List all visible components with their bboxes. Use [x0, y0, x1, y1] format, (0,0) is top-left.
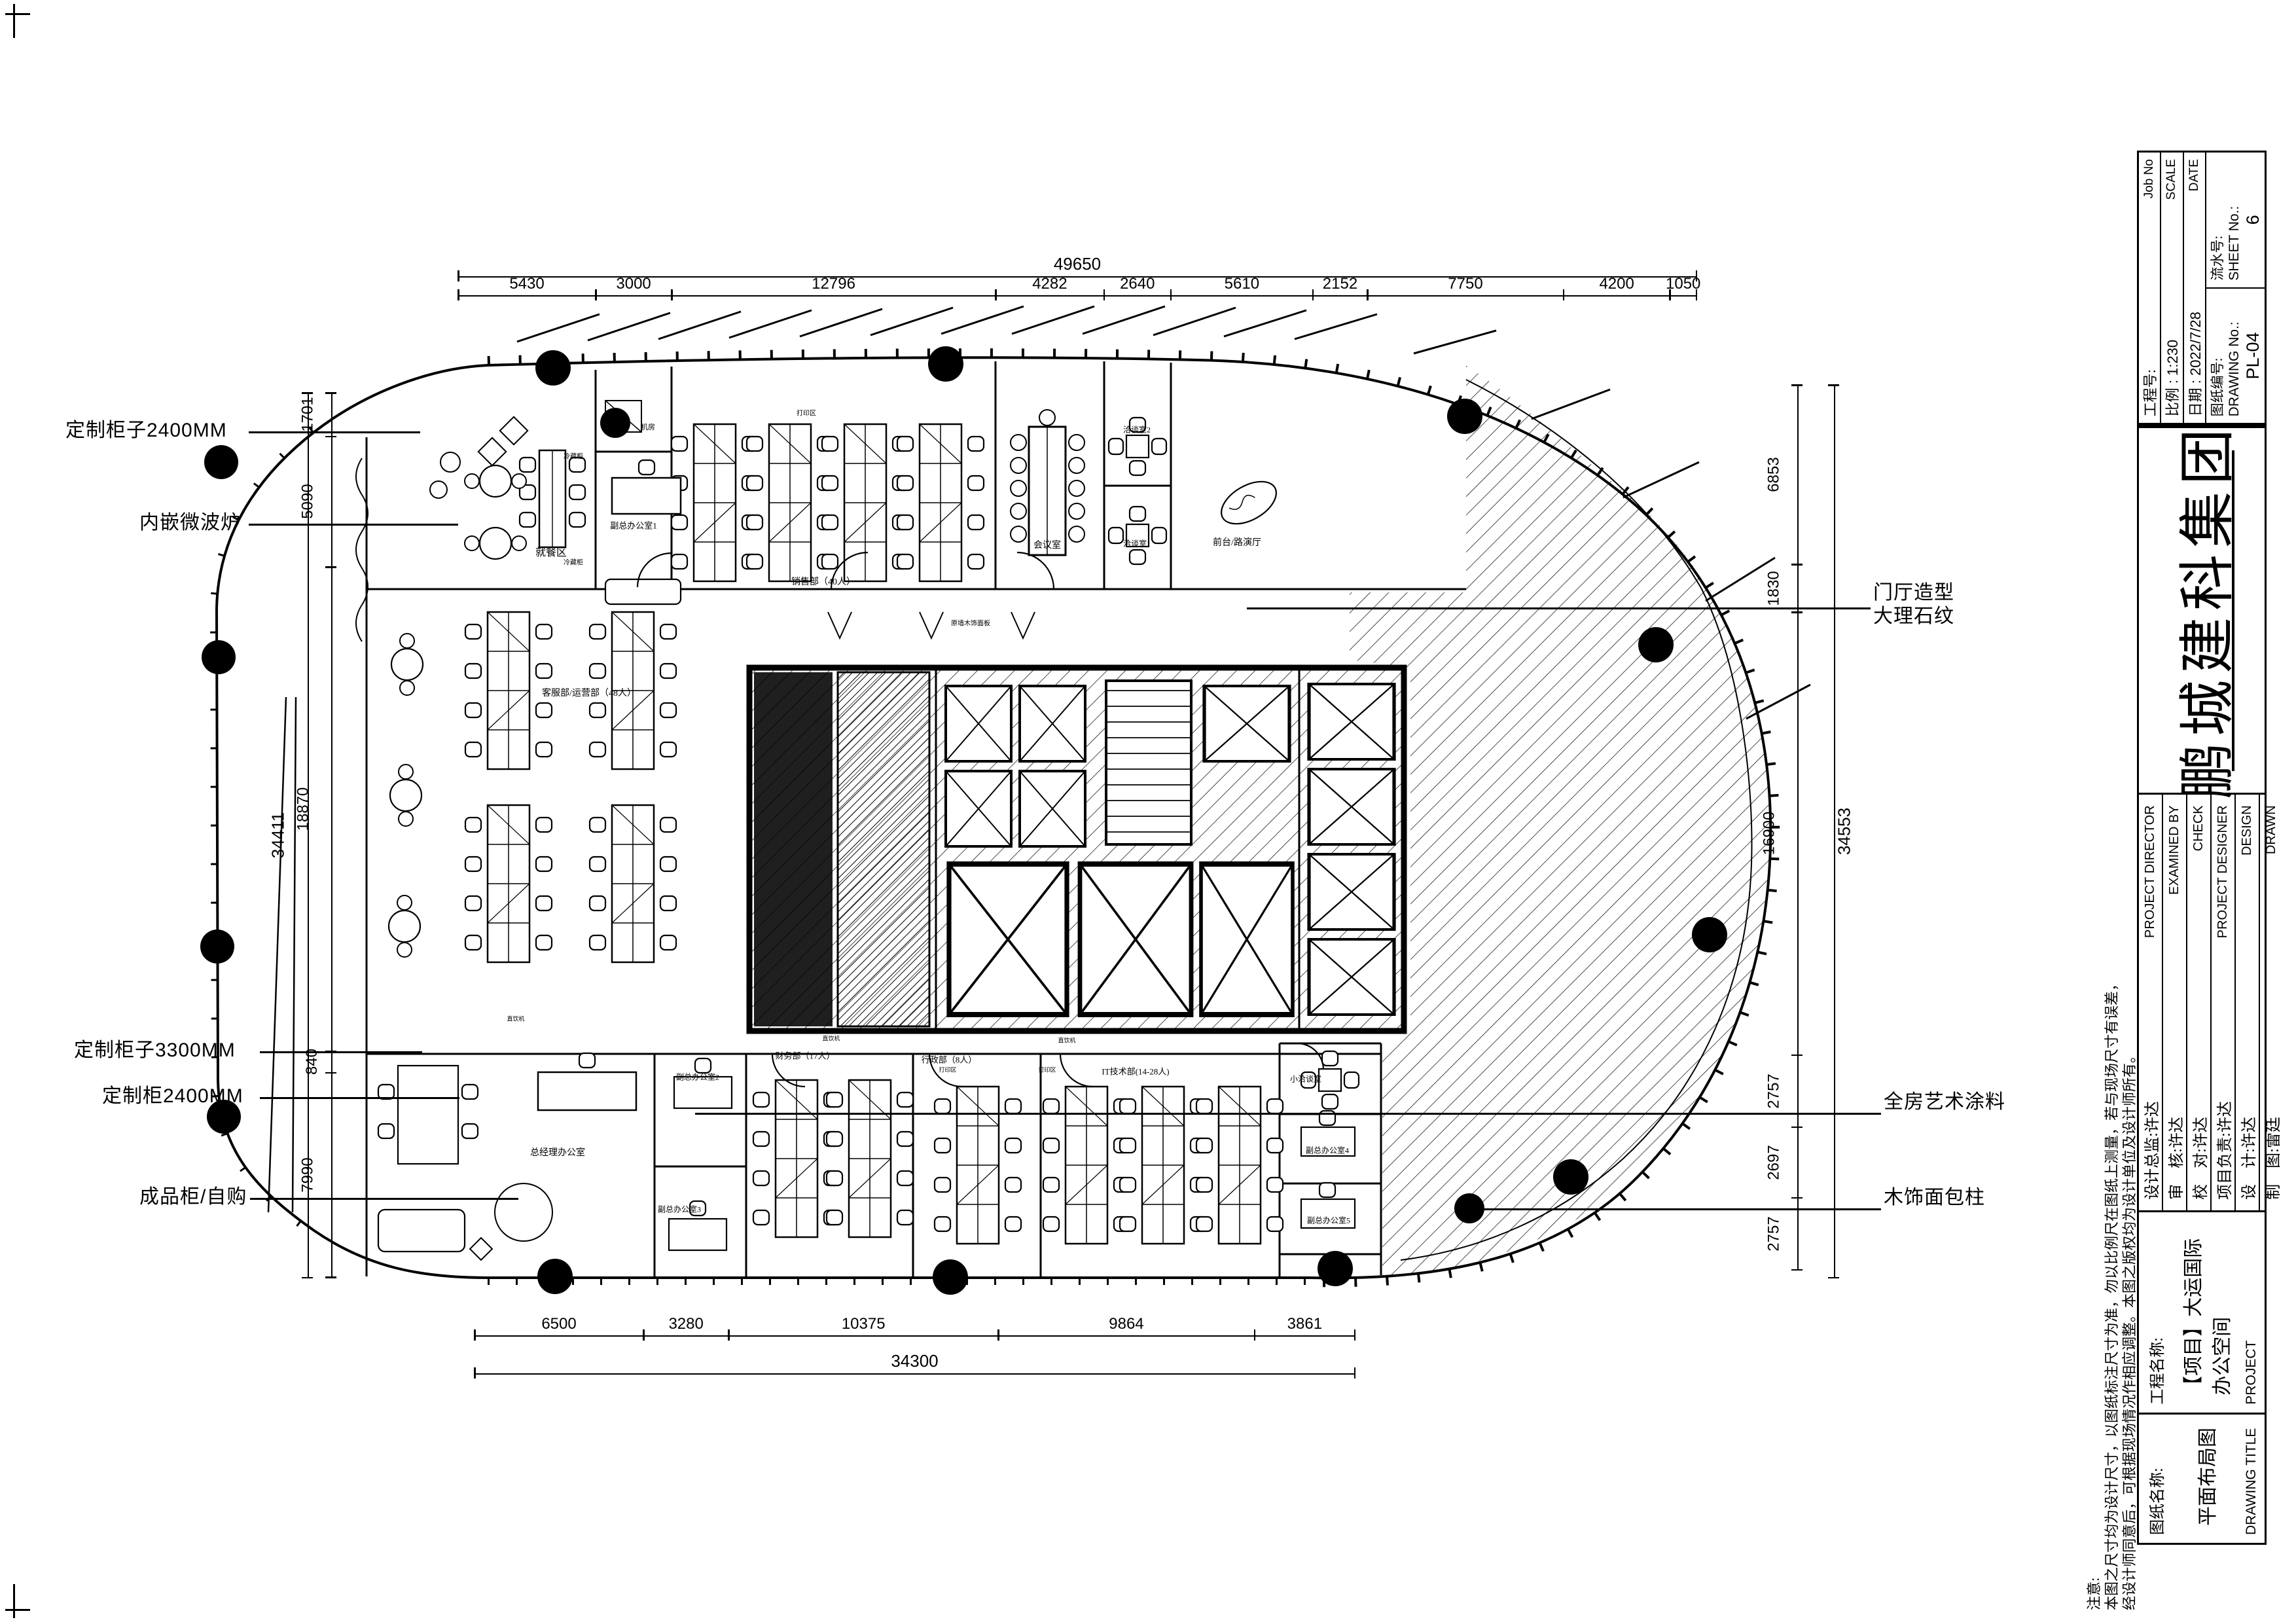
annotation-leader: [1475, 1208, 1881, 1210]
room-label: 打印区: [939, 1066, 956, 1074]
room-label: 小洽谈室: [1290, 1074, 1321, 1085]
project-name-value: 【项目】大运国际办公空间: [2177, 1220, 2234, 1405]
corner-mark: [13, 1584, 15, 1618]
staff-row: 设 计:许达DESIGN: [2236, 795, 2260, 1210]
staff-row: 制 图:雷廷DRAWN: [2260, 795, 2283, 1210]
room-label: 客服部/运营部（48人）: [542, 686, 636, 699]
room-label: 直饮机: [1058, 1036, 1075, 1045]
annotation-label: 定制柜2400MM: [102, 1085, 243, 1108]
room-label: 原墙木饰面板: [951, 618, 990, 628]
annotation-label: 内嵌微波炉: [139, 511, 241, 535]
room-label: 冷藏柜: [564, 557, 583, 567]
staff-row: 校 对:许达CHECK: [2187, 795, 2212, 1210]
annotation-label: 全房艺术涂料: [1884, 1091, 2005, 1114]
dim-segment: 3000: [596, 278, 672, 297]
dim-segment: 6500: [475, 1317, 643, 1337]
room-label: 打印区: [1038, 1066, 1056, 1074]
annotation-label: 定制柜子2400MM: [65, 419, 227, 442]
room-label: 洽谈室2: [1123, 424, 1151, 435]
drawing-number-value: PL-04: [2245, 295, 2261, 417]
room-label: 机房: [641, 422, 655, 432]
annotation-leader: [260, 1051, 422, 1053]
title-block: 图纸名称: 平面布局图 DRAWING TITLE 工程名称: 【项目】大运国际…: [2137, 151, 2267, 1545]
dim-segment: 10375: [728, 1317, 998, 1337]
drawing-sheet: 49650 5430300012796428226405610215277504…: [0, 0, 2296, 1624]
room-label: 就餐区: [535, 543, 567, 559]
drawing-name-en: DRAWING TITLE: [2244, 1422, 2259, 1535]
room-label: 打印区: [797, 408, 816, 418]
annotation-label: 门厅造型大理石纹: [1873, 581, 1954, 628]
annotation-leader: [249, 524, 458, 526]
dim-right-overall: 34553: [1814, 385, 1835, 1278]
note-line: 经设计师同意后，可根据现场情况作相应调整。本图之版权均为设计单位及设计师所有。: [2121, 223, 2138, 1610]
annotation-leader: [249, 431, 420, 433]
dim-segment: 3280: [643, 1317, 728, 1337]
project-name-label: 工程名称:: [2144, 1220, 2167, 1405]
scale-row: 比例 : 1:230 SCALE: [2161, 153, 2183, 423]
core: [749, 668, 1404, 1031]
room-label: 副总办公室3: [658, 1204, 701, 1215]
job-number-row: 工程号:Job No: [2139, 153, 2161, 423]
dim-segment: 18870: [309, 567, 332, 1051]
annotation-leader: [260, 1097, 459, 1099]
room-label: 副总办公室5: [1307, 1215, 1350, 1226]
note-label: 注意:: [2085, 223, 2103, 1610]
annotation-leader: [695, 1113, 1881, 1115]
dim-segment: 1701: [309, 393, 332, 437]
room-label: 洽谈室1: [1123, 538, 1151, 549]
staff-row: 审 核:许达EXAMINED BY: [2163, 795, 2187, 1210]
annotation-label: 定制柜子3300MM: [74, 1039, 236, 1062]
dim-segment: 7990: [309, 1073, 332, 1278]
room-label: 财务部（17人）: [775, 1049, 834, 1062]
staff-row: 项目负责:许达PROJECT DESIGNER: [2212, 795, 2236, 1210]
dim-segment: 16900: [1775, 612, 1799, 1055]
title-project-section: 工程名称: 【项目】大运国际办公空间 PROJECT: [2139, 1210, 2265, 1413]
title-drawing-section: 图纸名称: 平面布局图 DRAWING TITLE: [2139, 1413, 2265, 1543]
dim-segment: 4200: [1564, 278, 1670, 297]
room-label: 直饮机: [507, 1015, 524, 1023]
room-label: 副总办公室4: [1306, 1145, 1349, 1156]
dim-top-chain: 5430300012796428226405610215277504200105…: [458, 278, 1696, 297]
dim-segment: 1050: [1670, 278, 1696, 297]
annotation-label: 成品柜/自购: [139, 1185, 247, 1209]
annotation-leader: [1247, 607, 1871, 609]
room-label: 前台/路演厅: [1213, 535, 1261, 549]
dim-segment: 12796: [672, 278, 996, 297]
note-line: 本图之尺寸均为设计尺寸，以图纸标注尺寸为准，勿以比例尺在图纸上测量，若与现场尺寸…: [2103, 223, 2121, 1610]
floor-plan-svg: [0, 0, 2296, 1624]
room-label: 副总办公室2: [676, 1072, 719, 1083]
drawing-name-value: 平面布局图: [2191, 1422, 2220, 1535]
notes-strip: 注意: 本图之尺寸均为设计尺寸，以图纸标注尺寸为准，勿以比例尺在图纸上测量，若与…: [2085, 223, 2140, 1610]
sheet-number-cell: 流水号: SHEET No.: 6: [2206, 153, 2265, 287]
title-logo-section: 鹏城建科集团: [2139, 426, 2265, 793]
dim-bottom-overall: 34300: [475, 1352, 1355, 1375]
annotation-leader: [250, 1198, 518, 1200]
date-row: 日期 : 2022/7/28 DATE: [2184, 153, 2206, 423]
room-label: 冷藏柜: [564, 451, 583, 461]
logo-underline: [2232, 450, 2234, 771]
sheet-number-value: 6: [2245, 159, 2261, 281]
drawing-name-label: 图纸名称:: [2144, 1422, 2167, 1535]
dim-segment: 2757: [1775, 1055, 1799, 1127]
room-label: 直饮机: [822, 1034, 840, 1043]
room-label: IT技术部(14-28人): [1102, 1065, 1169, 1077]
dim-segment: 840: [309, 1051, 332, 1073]
corner-mark: [13, 4, 15, 38]
dim-segment: 7750: [1367, 278, 1564, 297]
corner-mark: [5, 13, 30, 15]
drawing-number-cell: 图纸编号: DRAWING No.: PL-04: [2206, 287, 2265, 424]
dim-right-chain: 6853183016900275726972757: [1775, 385, 1799, 1270]
title-staff-section: 设计总监:许达PROJECT DIRECTOR审 核:许达EXAMINED BY…: [2139, 793, 2265, 1210]
dim-segment: 2697: [1775, 1127, 1799, 1198]
staff-row: 设计总监:许达PROJECT DIRECTOR: [2139, 795, 2163, 1210]
dim-segment: 5610: [1171, 278, 1313, 297]
annotation-label: 木饰面包柱: [1884, 1186, 1985, 1210]
room-label: 行政部（8人）: [922, 1053, 977, 1066]
dim-segment: 3861: [1255, 1317, 1355, 1337]
corner-mark: [5, 1609, 30, 1611]
room-label: 副总办公室1: [610, 519, 657, 532]
dim-segment: 4282: [996, 278, 1104, 297]
dim-segment: 2640: [1104, 278, 1171, 297]
dim-segment: 1830: [1775, 564, 1799, 612]
dim-bottom-chain: 650032801037598643861: [475, 1317, 1355, 1337]
company-logo: 鹏城建科集团: [2161, 422, 2243, 799]
room-label: 销售部（40人）: [791, 575, 855, 588]
room-label: 会议室: [1033, 538, 1061, 551]
room-label: 总经理办公室: [530, 1146, 585, 1159]
title-info-section: 工程号:Job No 比例 : 1:230 SCALE 日期 : 2022/7/…: [2139, 153, 2265, 426]
dim-segment: 2152: [1313, 278, 1367, 297]
dim-segment: 9864: [998, 1317, 1255, 1337]
dim-segment: 6853: [1775, 385, 1799, 564]
dim-segment: 5430: [458, 278, 596, 297]
project-name-en: PROJECT: [2244, 1220, 2259, 1405]
dim-segment: 5090: [309, 437, 332, 568]
